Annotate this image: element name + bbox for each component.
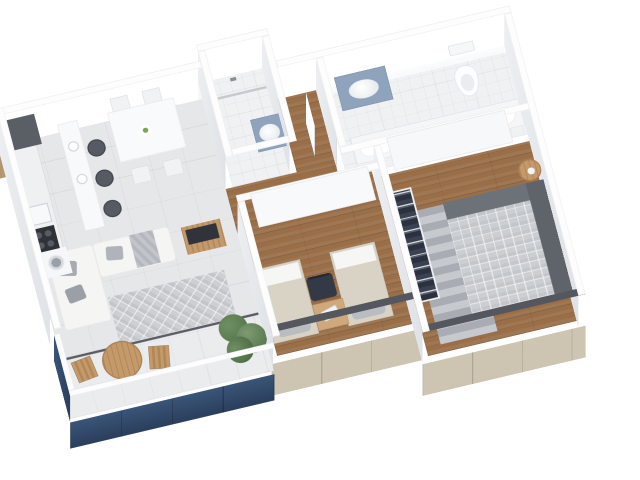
toilet-tank <box>448 40 476 56</box>
wall-top-wing-north <box>276 5 512 67</box>
toilet-seat <box>459 72 476 92</box>
tv-screen <box>185 223 220 245</box>
floor-plan-render <box>0 0 640 480</box>
sofa-pillow-3 <box>106 246 124 261</box>
washer-door <box>46 253 67 273</box>
apartment-plan <box>0 5 595 480</box>
isometric-world <box>0 5 595 480</box>
fruit-plate <box>138 123 153 137</box>
glass-1 <box>67 140 80 153</box>
side-table-vase <box>527 167 536 175</box>
sofa-pillow-2 <box>64 284 87 304</box>
bathroom2-basin <box>347 76 381 101</box>
wall-top-bath1-north <box>196 28 269 52</box>
sofa-throw-blanket <box>129 230 161 268</box>
balcony-chair-2 <box>148 345 170 369</box>
glass-2 <box>75 173 88 186</box>
